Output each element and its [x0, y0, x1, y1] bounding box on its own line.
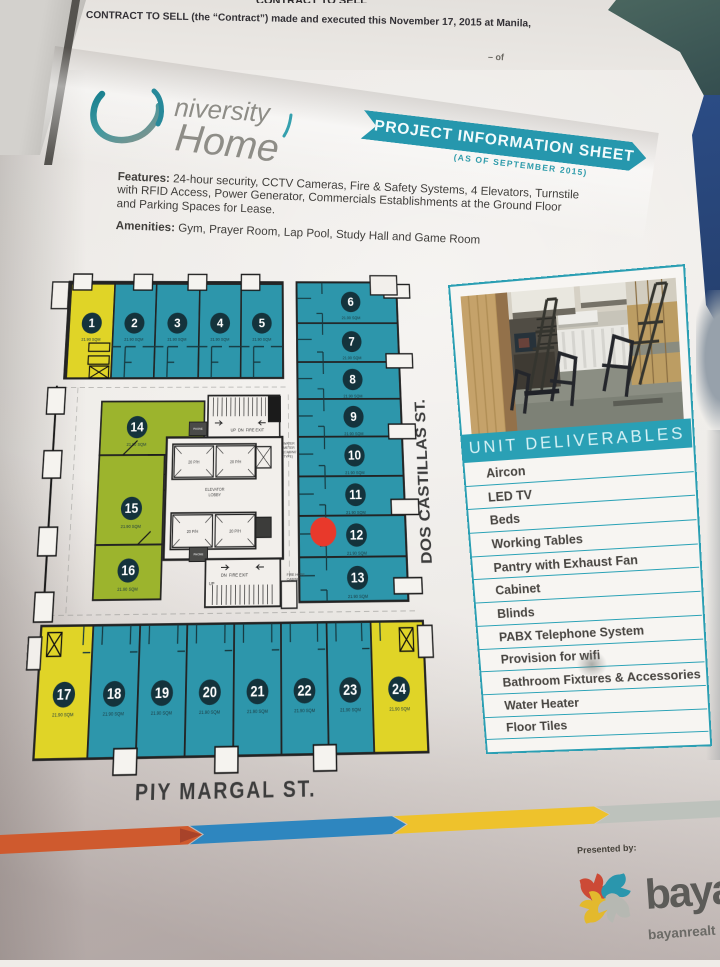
svg-text:5: 5 — [259, 317, 265, 330]
svg-text:UP DN FIRE EXIT: UP DN FIRE EXIT — [231, 428, 265, 433]
svg-text:DOS CASTILLAS ST.: DOS CASTILLAS ST. — [412, 399, 436, 564]
svg-text:18: 18 — [107, 687, 122, 703]
svg-text:9: 9 — [350, 411, 357, 425]
svg-text:21.90 SQM: 21.90 SQM — [345, 471, 365, 476]
svg-text:15: 15 — [124, 502, 138, 516]
svg-text:22: 22 — [297, 683, 311, 699]
svg-text:12: 12 — [350, 528, 364, 543]
svg-text:TYPE): TYPE) — [283, 454, 293, 459]
svg-text:21.90 SQM: 21.90 SQM — [151, 711, 172, 717]
svg-text:20 P/H: 20 P/H — [230, 460, 242, 465]
svg-text:16: 16 — [121, 564, 135, 579]
svg-text:21.90 SQM: 21.90 SQM — [389, 706, 410, 712]
svg-text:21.90 SQM: 21.90 SQM — [340, 707, 361, 713]
svg-text:21.90 SQM: 21.90 SQM — [347, 551, 367, 556]
svg-text:21.90 SQM: 21.90 SQM — [167, 338, 186, 342]
svg-text:7: 7 — [348, 336, 355, 349]
svg-text:13: 13 — [351, 571, 365, 586]
svg-text:DN FIRE EXIT: DN FIRE EXIT — [221, 573, 249, 578]
svg-text:21.90 SQM: 21.90 SQM — [81, 338, 100, 342]
svg-text:17: 17 — [56, 687, 71, 703]
svg-text:20 P/H: 20 P/H — [188, 460, 200, 465]
svg-text:21.90 SQM: 21.90 SQM — [343, 356, 362, 360]
svg-text:14: 14 — [130, 421, 145, 435]
svg-text:6: 6 — [347, 296, 354, 309]
svg-text:2: 2 — [131, 317, 138, 330]
svg-text:21: 21 — [250, 684, 264, 700]
svg-text:PHONE: PHONE — [193, 427, 203, 430]
svg-text:23: 23 — [343, 683, 357, 699]
svg-text:21.90 SQM: 21.90 SQM — [294, 708, 315, 714]
svg-text:20: 20 — [203, 685, 217, 701]
svg-text:19: 19 — [155, 686, 170, 702]
svg-text:21.90 SQM: 21.90 SQM — [117, 587, 138, 592]
svg-text:ELEVATOR: ELEVATOR — [205, 487, 225, 492]
svg-text:21.90 SQM: 21.90 SQM — [342, 316, 361, 320]
svg-text:21.90 SQM: 21.90 SQM — [103, 711, 124, 717]
svg-text:20 P/H: 20 P/H — [229, 529, 241, 534]
svg-text:4: 4 — [217, 317, 224, 330]
svg-text:21.90 SQM: 21.90 SQM — [127, 442, 147, 447]
svg-text:24: 24 — [392, 682, 407, 698]
svg-text:20 P/H: 20 P/H — [187, 529, 199, 534]
svg-text:UP: UP — [209, 581, 215, 586]
svg-text:3: 3 — [174, 317, 181, 330]
svg-text:21.90 SQM: 21.90 SQM — [121, 524, 141, 529]
svg-text:21.90 SQM: 21.90 SQM — [210, 338, 229, 342]
svg-text:1: 1 — [88, 317, 95, 330]
svg-text:21.90 SQM: 21.90 SQM — [52, 712, 74, 718]
svg-text:8: 8 — [349, 373, 356, 386]
svg-text:PHONE: PHONE — [194, 553, 204, 557]
svg-text:21.90 SQM: 21.90 SQM — [252, 338, 271, 342]
svg-text:10: 10 — [348, 449, 361, 463]
svg-text:21.90 SQM: 21.90 SQM — [348, 594, 368, 599]
svg-text:LOBBY: LOBBY — [208, 493, 221, 498]
svg-text:21.90 SQM: 21.90 SQM — [247, 709, 268, 715]
svg-text:11: 11 — [349, 488, 362, 502]
svg-text:21.90 SQM: 21.90 SQM — [124, 338, 143, 342]
svg-text:21.90 SQM: 21.90 SQM — [199, 710, 220, 716]
